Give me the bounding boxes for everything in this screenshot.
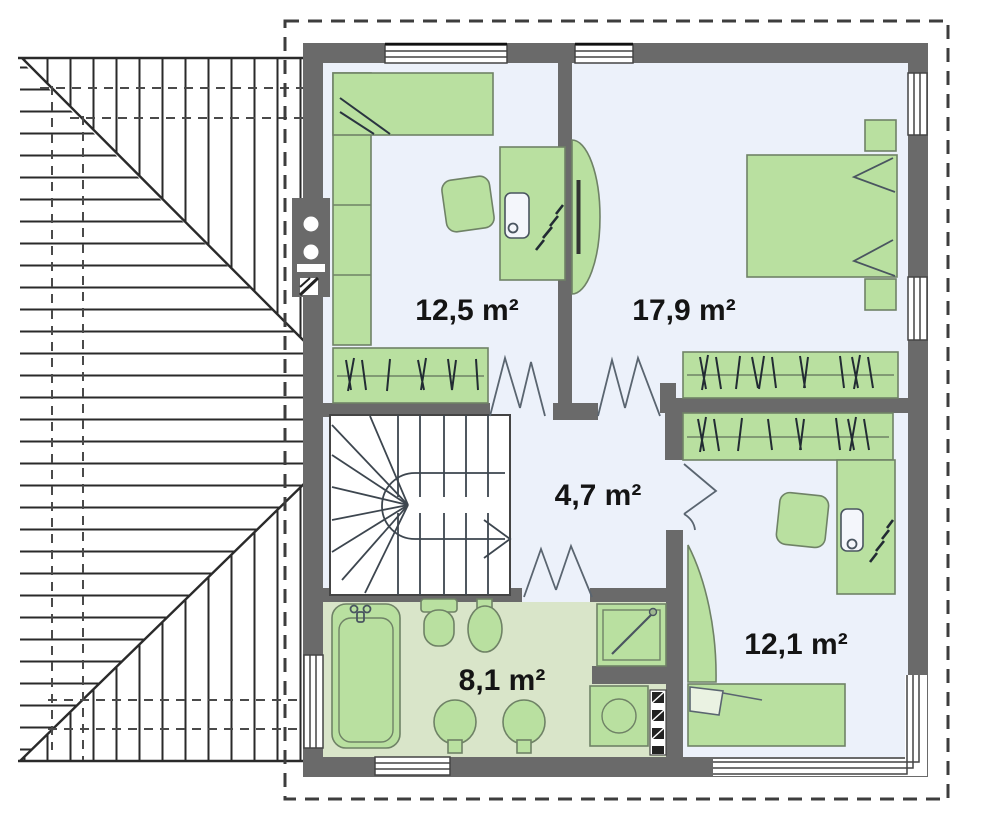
room-label-12-5: 12,5 m²	[415, 294, 518, 327]
double-bed	[747, 155, 897, 277]
duct-shaft	[650, 690, 666, 755]
armchair	[775, 492, 829, 549]
window-left-bath	[304, 655, 323, 748]
window-right-2	[908, 277, 927, 340]
chimney	[292, 198, 330, 297]
sofa-top	[333, 73, 493, 135]
wardrobe-room-17-9	[683, 352, 898, 398]
washbasin-2-stub	[517, 740, 531, 753]
bathtub	[332, 604, 400, 748]
washbasin-2	[503, 700, 545, 744]
staircase	[330, 415, 510, 595]
wall-hall-north-right	[660, 398, 928, 413]
floor-plan: 12,5 m² 17,9 m² 4,7 m² 8,1 m² 12,1 m²	[292, 43, 928, 777]
wall-under-shower	[592, 666, 666, 684]
bed-pillow	[690, 687, 723, 715]
nightstand-bottom	[865, 279, 896, 310]
wall-east-upper	[665, 413, 683, 460]
window-top-2	[575, 44, 633, 63]
bidet	[468, 606, 502, 652]
wall-east-lower	[666, 530, 683, 757]
room-label-17-9: 17,9 m²	[632, 294, 735, 327]
shower-head	[650, 609, 657, 616]
washing-machine	[590, 686, 648, 746]
window-right-1	[908, 73, 927, 135]
room-label-4-7: 4,7 m²	[555, 479, 642, 512]
roof-plan	[18, 58, 310, 761]
washbasin-1-stub	[448, 740, 462, 753]
wall-divider-foot	[553, 403, 598, 420]
wardrobe-room-12-1	[683, 413, 893, 460]
window-bottom-bath	[375, 757, 450, 775]
wall-stub	[660, 383, 676, 398]
room-label-12-1: 12,1 m²	[744, 628, 847, 661]
wardrobe-room-12-5	[333, 348, 488, 403]
armchair	[441, 175, 496, 233]
toilet	[424, 610, 454, 646]
window-top-1	[385, 44, 507, 63]
floor-plan-canvas: 12,5 m² 17,9 m² 4,7 m² 8,1 m² 12,1 m²	[0, 0, 1000, 819]
wall-bath-north-right	[590, 588, 666, 602]
nightstand-top	[865, 120, 896, 151]
desk-chair	[841, 509, 863, 551]
room-label-8-1: 8,1 m²	[459, 664, 546, 697]
tv	[577, 180, 581, 254]
washbasin-1	[434, 700, 476, 744]
